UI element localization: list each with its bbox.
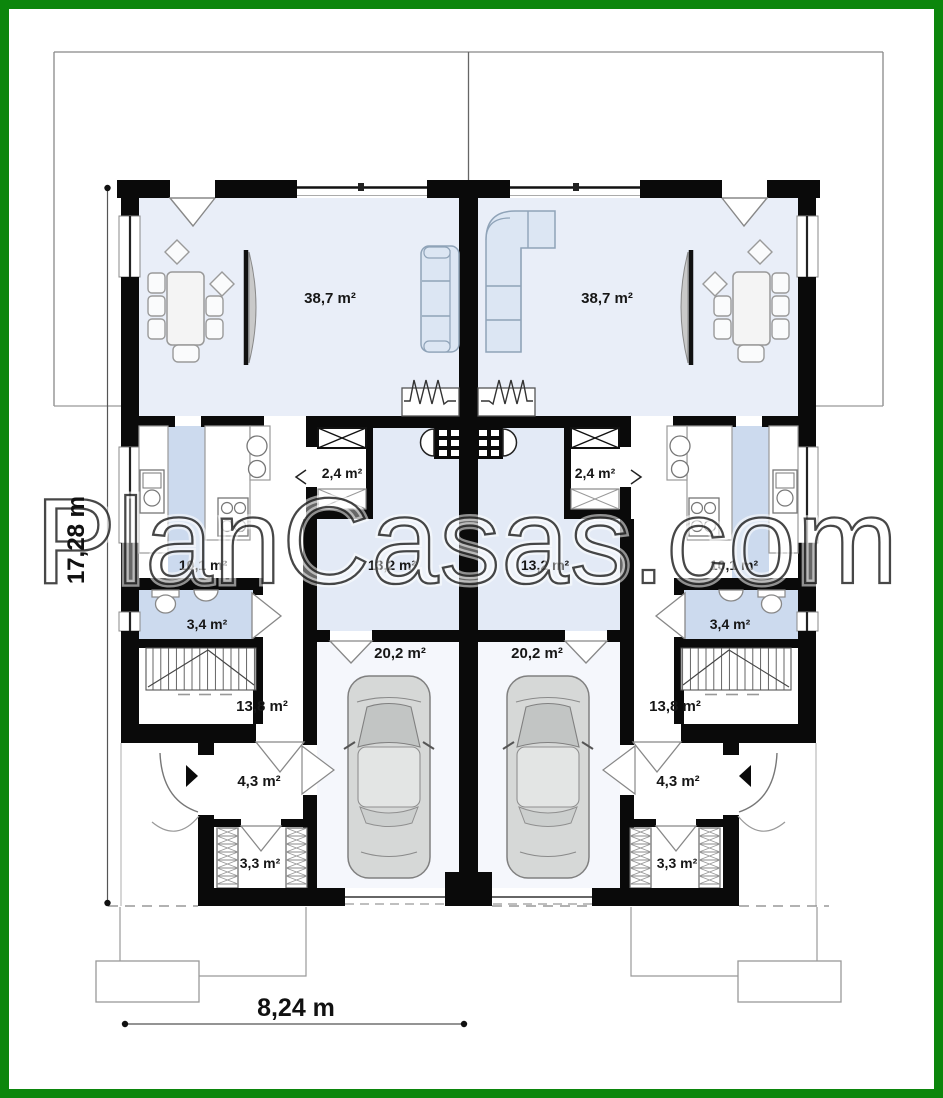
svg-text:4,3 m²: 4,3 m² (237, 773, 280, 790)
svg-text:3,3 m²: 3,3 m² (657, 855, 698, 871)
svg-text:3,3 m²: 3,3 m² (240, 855, 281, 871)
svg-text:3,4 m²: 3,4 m² (710, 616, 751, 632)
svg-text:13,8 m²: 13,8 m² (649, 698, 701, 715)
svg-text:17,28 m: 17,28 m (63, 496, 90, 584)
svg-text:4,3 m²: 4,3 m² (656, 773, 699, 790)
svg-text:3,4 m²: 3,4 m² (187, 616, 228, 632)
svg-text:13,8 m²: 13,8 m² (236, 698, 288, 715)
svg-text:38,7 m²: 38,7 m² (581, 290, 633, 307)
svg-text:8,24 m: 8,24 m (257, 994, 335, 1022)
svg-text:20,2 m²: 20,2 m² (511, 645, 563, 662)
svg-text:PlanCasas.com: PlanCasas.com (35, 473, 899, 609)
svg-text:20,2 m²: 20,2 m² (374, 645, 426, 662)
svg-text:38,7 m²: 38,7 m² (304, 290, 356, 307)
